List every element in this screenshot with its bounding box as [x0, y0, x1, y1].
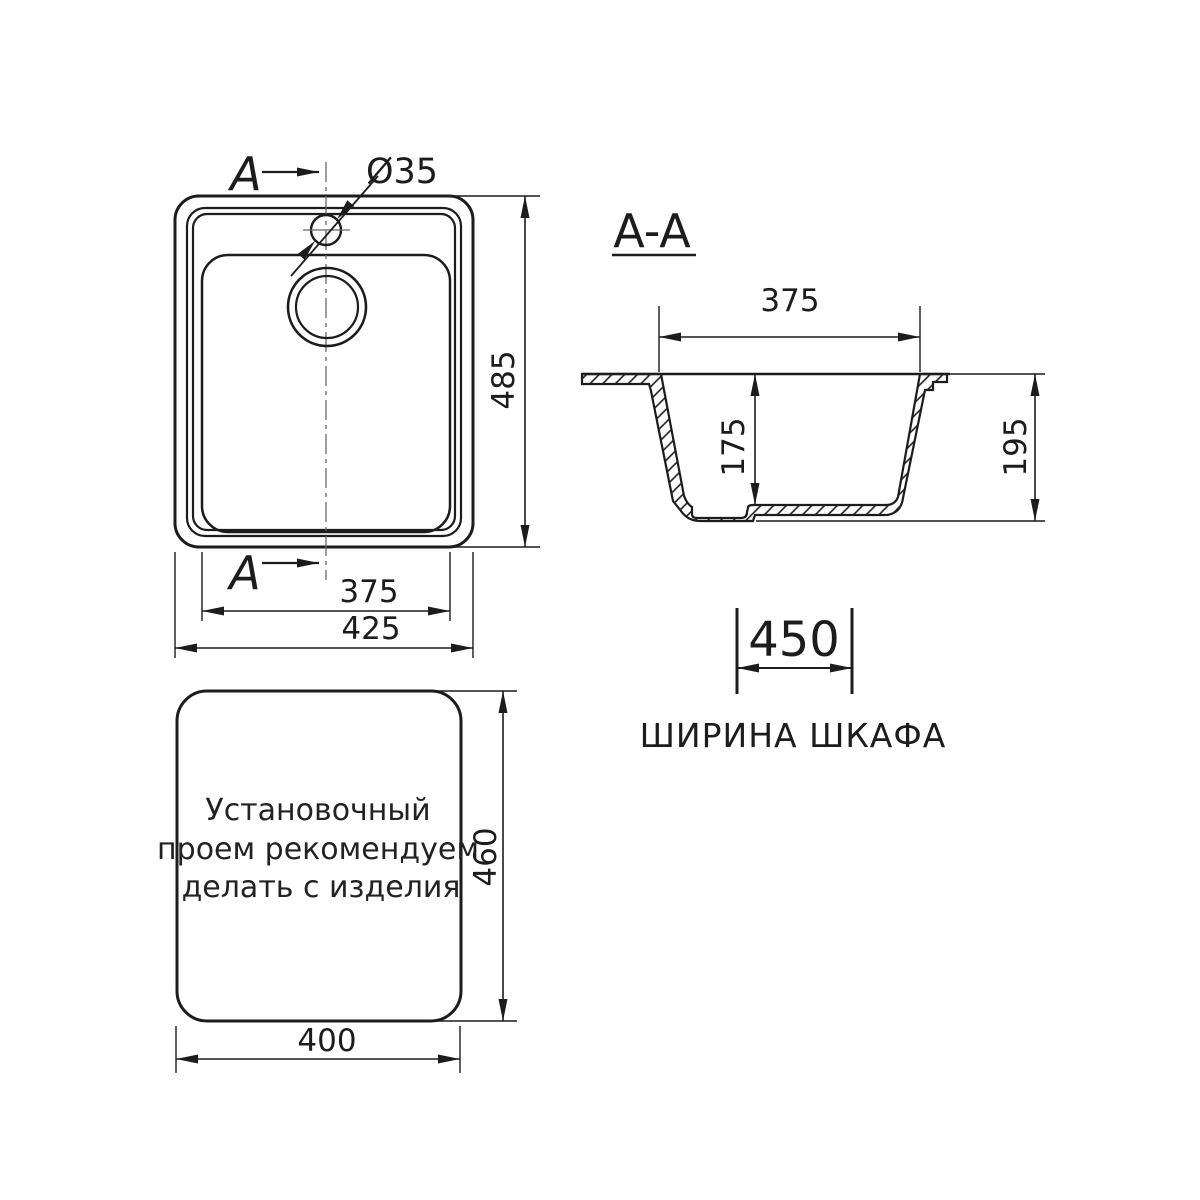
- section-title: A-A: [613, 204, 691, 258]
- dim-value-bowl-depth: 175: [716, 417, 752, 476]
- cabinet-width-label: ШИРИНА ШКАФА: [640, 716, 947, 755]
- section-view: A-A 375 175 195: [582, 204, 1045, 521]
- dim-value-bowl-width: 375: [339, 574, 398, 610]
- drawing-svg: Ø35 A A 485 375 425 A-A: [0, 0, 1200, 1200]
- sink-outer-edge: [175, 196, 473, 547]
- dim-value-cutout-width: 400: [297, 1023, 356, 1059]
- dim-value-cabinet-width: 450: [748, 612, 840, 668]
- cabinet-width-dimension: 450 ШИРИНА ШКАФА: [640, 608, 947, 755]
- cutout-note-line-1: Установочный: [205, 793, 430, 828]
- plan-view: Ø35 A A 485 375 425: [175, 147, 540, 658]
- drain-inner-ring: [296, 276, 358, 338]
- dim-value-overall-height: 195: [998, 417, 1034, 476]
- dim-value-section-width: 375: [760, 283, 819, 319]
- dim-value-depth: 485: [486, 350, 522, 409]
- dim-value-cutout-height: 460: [468, 827, 504, 886]
- sink-technical-drawing: Ø35 A A 485 375 425 A-A: [0, 0, 1200, 1200]
- cutout-note-line-3: делать с изделия: [182, 870, 461, 905]
- section-cut-label-top: A: [227, 147, 261, 201]
- cutout-view: Установочный проем рекомендуем делать с …: [157, 691, 517, 1073]
- drain-outer-ring: [288, 268, 366, 346]
- section-material-profile: [582, 374, 947, 521]
- cutout-note-line-2: проем рекомендуем: [157, 832, 479, 867]
- dim-value-overall-width: 425: [341, 611, 400, 647]
- section-cut-label-bottom: A: [226, 546, 260, 600]
- diameter-leader-line: [291, 176, 378, 276]
- sink-rim-inner: [193, 214, 455, 530]
- faucet-diameter-label: Ø35: [366, 152, 438, 192]
- sink-rim-outer: [187, 208, 461, 536]
